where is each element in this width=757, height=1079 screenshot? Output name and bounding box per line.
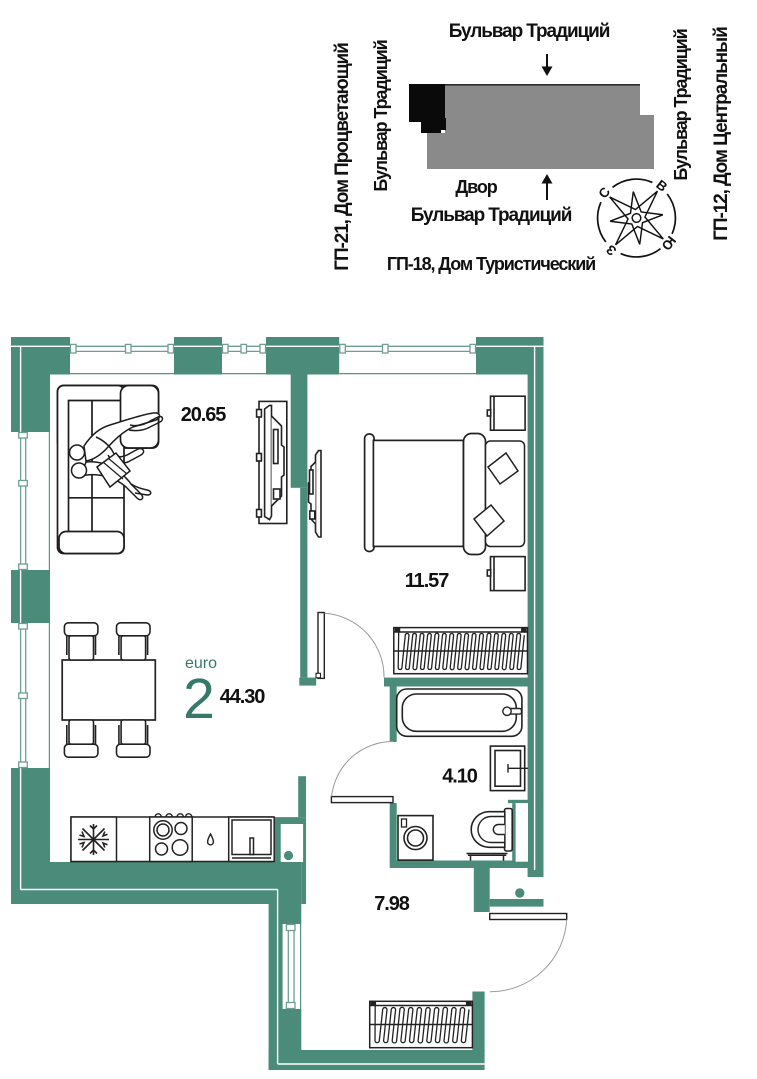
svg-text:20.65: 20.65 — [181, 404, 227, 426]
svg-text:11.57: 11.57 — [405, 570, 449, 592]
svg-text:Бульвар Традиций: Бульвар Традиций — [671, 29, 691, 180]
svg-text:Бульвар Традиций: Бульвар Традиций — [449, 21, 610, 42]
svg-text:ГП-18, Дом Туристический: ГП-18, Дом Туристический — [387, 254, 595, 274]
svg-text:2: 2 — [183, 667, 215, 731]
svg-text:ГП-12, Дом Центральный: ГП-12, Дом Центральный — [711, 27, 732, 241]
svg-text:44.30: 44.30 — [220, 686, 266, 708]
svg-text:ГП-21, Дом Процветающий: ГП-21, Дом Процветающий — [332, 43, 353, 271]
svg-text:Бульвар Традиций: Бульвар Традиций — [411, 205, 572, 226]
svg-text:7.98: 7.98 — [374, 893, 410, 915]
svg-text:Бульвар Традиций: Бульвар Традиций — [371, 40, 391, 191]
svg-text:Двор: Двор — [455, 177, 497, 197]
svg-text:4.10: 4.10 — [442, 766, 478, 788]
